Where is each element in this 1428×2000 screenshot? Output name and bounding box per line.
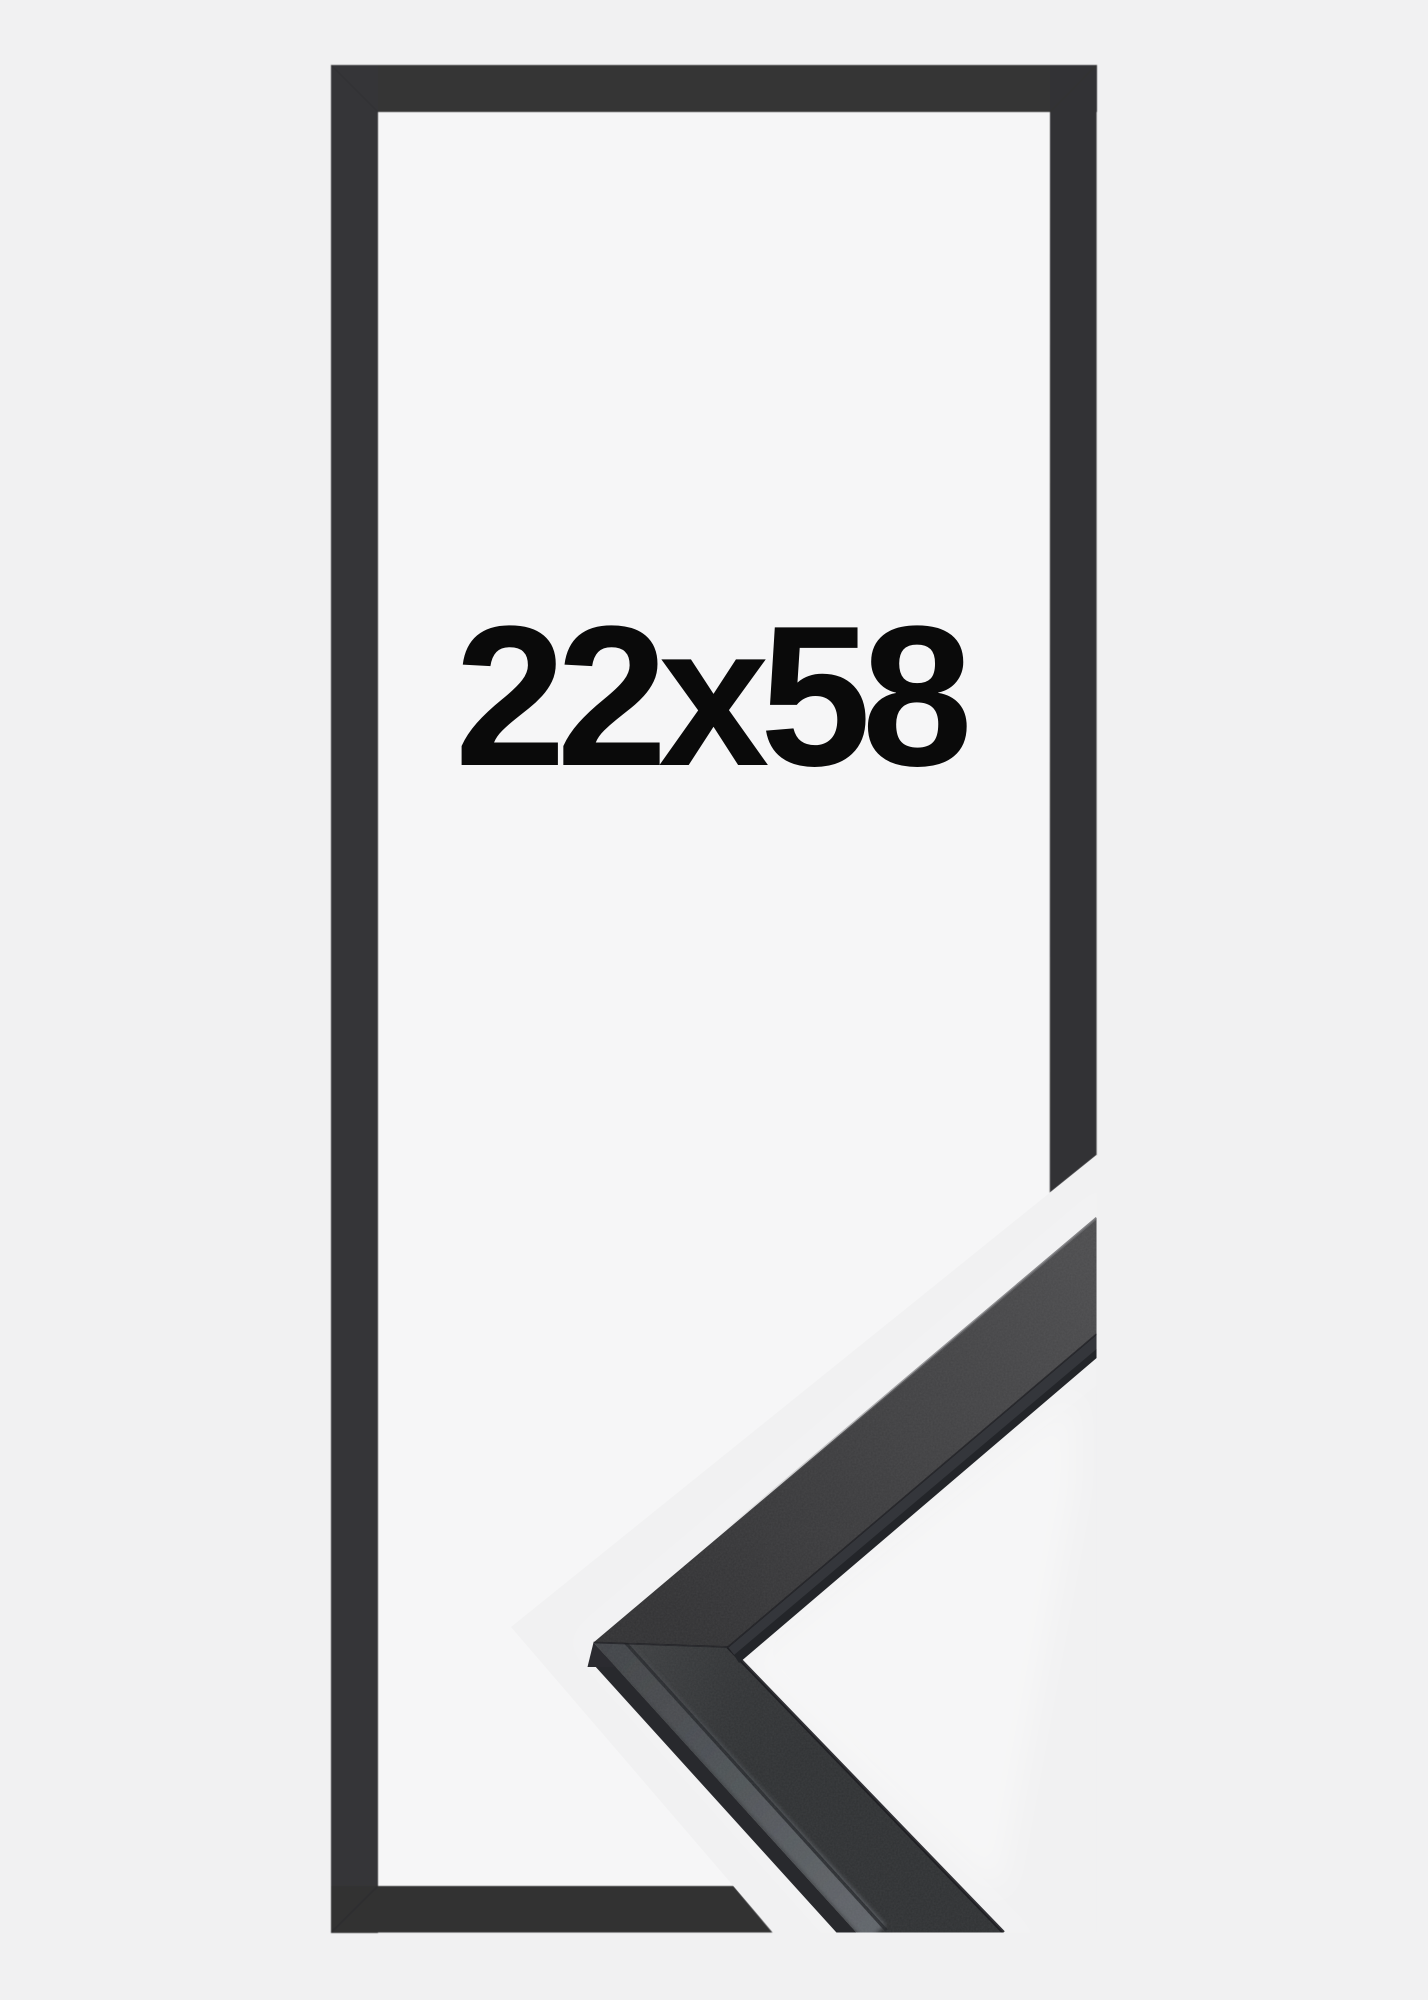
svg-text:22x58: 22x58	[455, 585, 968, 808]
